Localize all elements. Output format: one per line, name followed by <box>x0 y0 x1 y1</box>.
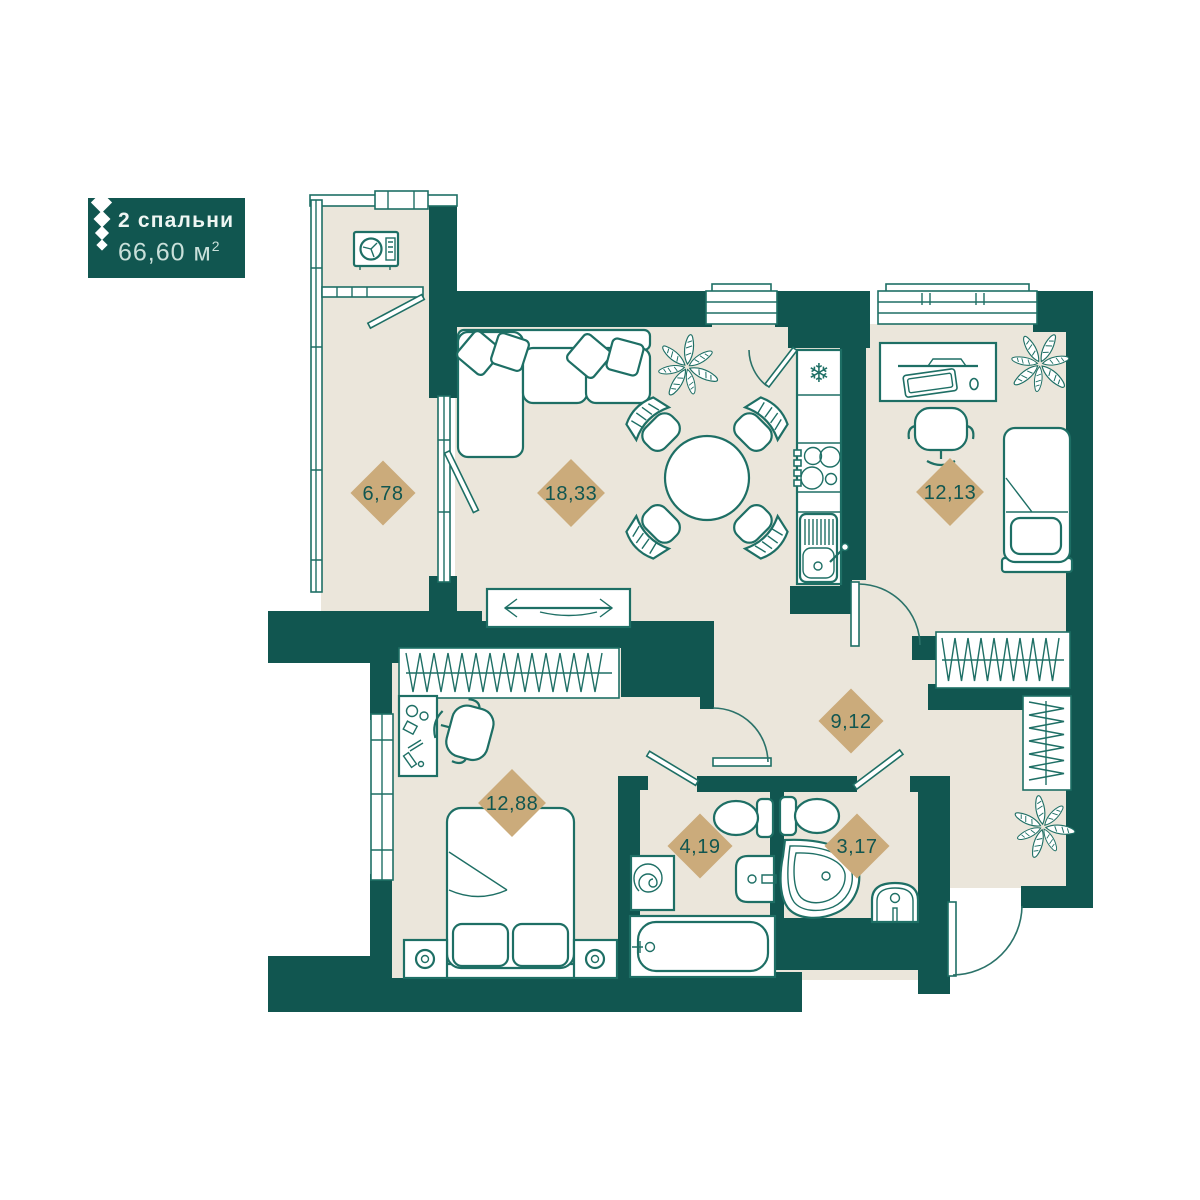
svg-text:18,33: 18,33 <box>545 483 598 505</box>
toilet-icon <box>714 799 773 837</box>
door-entrance <box>948 902 1022 976</box>
svg-text:12,13: 12,13 <box>924 482 977 504</box>
tv-stand-icon <box>487 589 630 627</box>
pillow-icon <box>453 924 508 966</box>
mouse-icon <box>970 379 978 390</box>
svg-text:3,17: 3,17 <box>837 836 878 858</box>
balcony-top-glazing <box>310 191 457 209</box>
desk-icon <box>880 343 996 401</box>
wardrobe-bedroom-right <box>936 632 1070 688</box>
pillow-icon <box>513 924 568 966</box>
dressing-table-icon <box>399 696 437 776</box>
wc-sink-icon <box>872 883 918 922</box>
balcony-left-glazing <box>311 200 322 592</box>
bathroom-sink-icon <box>736 856 776 902</box>
bed-single-icon <box>1002 428 1072 572</box>
bedroom-right-window <box>878 284 1037 324</box>
toilet-icon <box>780 797 839 835</box>
floorplan-drawing: ❄ <box>0 0 1200 1200</box>
nightstand-icon <box>574 940 617 978</box>
bedroom-left-window <box>371 714 393 880</box>
svg-text:12,88: 12,88 <box>486 793 539 815</box>
wardrobe-bedroom-left <box>399 648 619 698</box>
pillow-icon <box>605 337 644 376</box>
living-window <box>706 284 777 324</box>
nightstand-icon <box>404 940 447 978</box>
svg-text:6,78: 6,78 <box>363 483 404 505</box>
pillow-icon <box>1011 518 1061 554</box>
svg-text:9,12: 9,12 <box>831 711 872 733</box>
dining-table-icon <box>665 436 749 520</box>
ac-unit-icon <box>354 232 398 270</box>
svg-text:4,19: 4,19 <box>680 836 721 858</box>
wardrobe-hall-vertical <box>1023 696 1071 790</box>
bathtub-icon <box>630 916 775 977</box>
washing-machine-icon <box>631 856 674 910</box>
fridge-icon: ❄ <box>808 359 830 389</box>
floorplan-page: 2 спальни 66,60 м2 <box>0 0 1200 1200</box>
